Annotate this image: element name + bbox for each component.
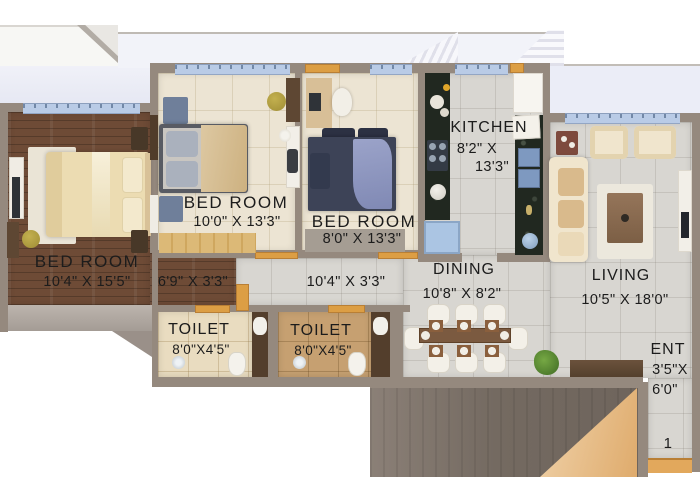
label-toilet1-name: TOILET — [168, 321, 230, 339]
plates — [430, 95, 444, 109]
label-kitchen-dims2: 13'3" — [475, 159, 509, 175]
balcony-ledge — [8, 305, 152, 331]
placemat — [457, 345, 471, 357]
door-bedroom-right-balcony — [305, 64, 340, 73]
placemat — [485, 345, 499, 357]
teacups — [569, 142, 575, 148]
dresser-white — [150, 195, 158, 233]
wall — [268, 311, 278, 377]
washbasin — [373, 317, 388, 335]
label-toilet2-name: TOILET — [290, 322, 352, 340]
desk-chair — [332, 88, 352, 116]
entrance-threshold — [648, 458, 692, 473]
wardrobe-low — [159, 233, 256, 253]
placemat — [429, 345, 443, 357]
label-toilet2-dims: 8'0"X4'5" — [294, 343, 351, 358]
door-kitchen-top — [510, 63, 524, 73]
tv-screen — [681, 212, 689, 238]
console-table — [570, 360, 643, 377]
armchair — [590, 126, 628, 159]
window-bedroom-left — [23, 103, 140, 114]
dresser — [7, 222, 19, 258]
toilet-wc — [228, 352, 246, 376]
plates — [440, 108, 449, 117]
label-bedroom-left-name: BED ROOM — [35, 252, 140, 272]
plate — [421, 331, 430, 340]
pillow — [166, 161, 198, 187]
door-bedroom-right — [378, 252, 418, 259]
bed-mid-blanket — [201, 125, 247, 192]
wardrobe — [150, 115, 158, 160]
bed-right-throw — [353, 139, 392, 209]
ledge-corner — [112, 331, 152, 357]
balcony-deck-living — [548, 64, 700, 115]
unit-number: 1 — [664, 435, 673, 452]
label-bedroom-mid-dims: 10'0" X 13'3" — [193, 214, 280, 230]
wardrobe — [286, 78, 300, 122]
nightstand-rug — [163, 97, 188, 124]
hob-burner — [439, 155, 446, 162]
label-living-dims: 10'5" X 18'0" — [581, 292, 668, 308]
label-toilet1-dims: 8'0"X4'5" — [172, 342, 229, 357]
window-living — [565, 113, 680, 124]
sofa-cushion — [558, 168, 584, 196]
desk-chair — [287, 149, 298, 173]
oven — [518, 169, 540, 188]
kitchen-sink — [430, 184, 446, 200]
cabinet-white — [513, 73, 543, 113]
floor-plan: BED ROOM 10'4" X 15'5" 6'9" X 3'3" BED R… — [0, 0, 700, 500]
bottle — [526, 205, 532, 215]
door-toilet1 — [195, 305, 230, 313]
wall — [370, 377, 643, 388]
plant — [534, 350, 559, 375]
label-bedroom-right-dims: 8'0" X 13'3" — [323, 231, 402, 247]
plate — [500, 331, 509, 340]
label-passage1-dims: 6'9" X 3'3" — [158, 274, 228, 290]
bed-left-runner — [92, 152, 110, 237]
label-kitchen-dims1: 8'2" X — [457, 141, 497, 157]
kitchen-sink-2 — [522, 233, 538, 249]
lemon — [443, 84, 450, 91]
label-dining-name: DINING — [433, 261, 495, 279]
label-entrance-dims2: 6'0" — [652, 382, 678, 398]
washbasin — [253, 317, 267, 335]
pouf — [267, 92, 286, 111]
bed-right-cushion — [310, 153, 330, 189]
pillow — [122, 157, 143, 193]
door-passage — [236, 284, 249, 311]
pillow — [122, 197, 143, 233]
door-bedroom-mid — [255, 252, 298, 259]
table-decor — [621, 214, 629, 222]
wall — [0, 103, 8, 332]
placemat — [485, 320, 499, 332]
wall — [638, 382, 648, 477]
label-bedroom-left-dims: 10'4" X 15'5" — [43, 274, 130, 290]
nightstand — [159, 196, 183, 222]
tv-unit — [678, 170, 692, 252]
pouf — [22, 230, 40, 248]
wall — [390, 305, 403, 387]
label-kitchen-name: KITCHEN — [450, 119, 527, 137]
armchair — [634, 126, 676, 159]
teacups — [561, 136, 567, 142]
tv-screen — [12, 177, 20, 218]
fridge — [424, 221, 460, 254]
label-entrance-name: ENT — [651, 341, 686, 359]
sofa-cushion — [558, 232, 584, 256]
hob-burner — [439, 143, 446, 150]
wall — [152, 305, 410, 312]
vase-flowers — [279, 129, 291, 142]
balcony-deck-left — [0, 66, 152, 103]
label-dining-dims: 10'8" X 8'2" — [423, 286, 502, 302]
oven — [518, 148, 540, 167]
bed-left-foot-fold — [46, 152, 62, 237]
hob-burner — [429, 143, 436, 150]
window-kitchen — [455, 64, 508, 75]
placemat — [457, 320, 471, 332]
placemat — [429, 320, 443, 332]
dining-chair — [508, 327, 528, 350]
label-bedroom-right-name: BED ROOM — [312, 212, 417, 232]
hob-burner — [429, 155, 436, 162]
sofa-cushion — [558, 200, 584, 228]
window-bedroom-mid — [175, 64, 290, 75]
window-bedroom-right — [370, 64, 412, 75]
nightstand — [131, 127, 148, 150]
laptop — [309, 93, 321, 111]
label-entrance-dims1: 3'5"X — [652, 362, 688, 378]
nightstand — [131, 230, 148, 253]
pillow — [166, 131, 198, 157]
label-passage2-dims: 10'4" X 3'3" — [307, 274, 386, 290]
door-toilet2 — [328, 305, 365, 313]
wall — [692, 113, 700, 472]
shower-head — [172, 356, 185, 369]
label-living-name: LIVING — [592, 267, 650, 285]
label-bedroom-mid-name: BED ROOM — [184, 193, 289, 213]
